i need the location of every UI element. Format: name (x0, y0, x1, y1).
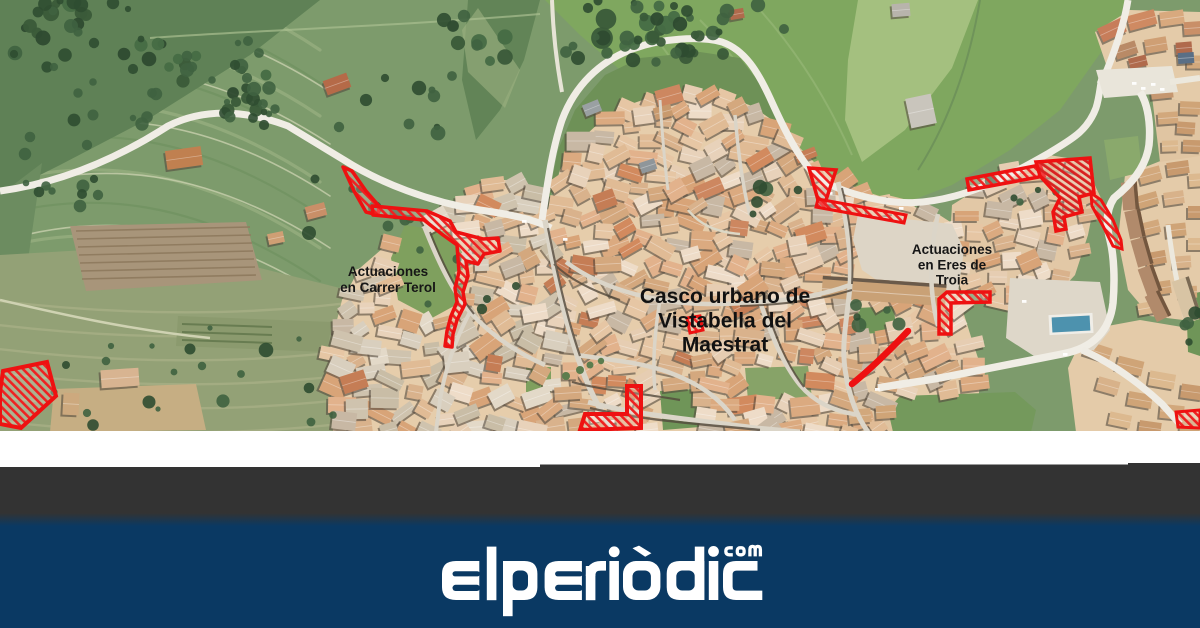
svg-text:Vistabella del: Vistabella del (658, 310, 792, 333)
svg-text:en Eres de: en Eres de (918, 258, 987, 273)
svg-text:Maestrat: Maestrat (682, 334, 768, 357)
svg-text:Actuaciones: Actuaciones (348, 264, 428, 279)
svg-text:Troia: Troia (936, 273, 969, 288)
svg-text:Actuaciones: Actuaciones (912, 242, 992, 257)
svg-text:en Carrer Terol: en Carrer Terol (340, 280, 436, 295)
svg-text:Casco urbano de: Casco urbano de (640, 285, 810, 308)
